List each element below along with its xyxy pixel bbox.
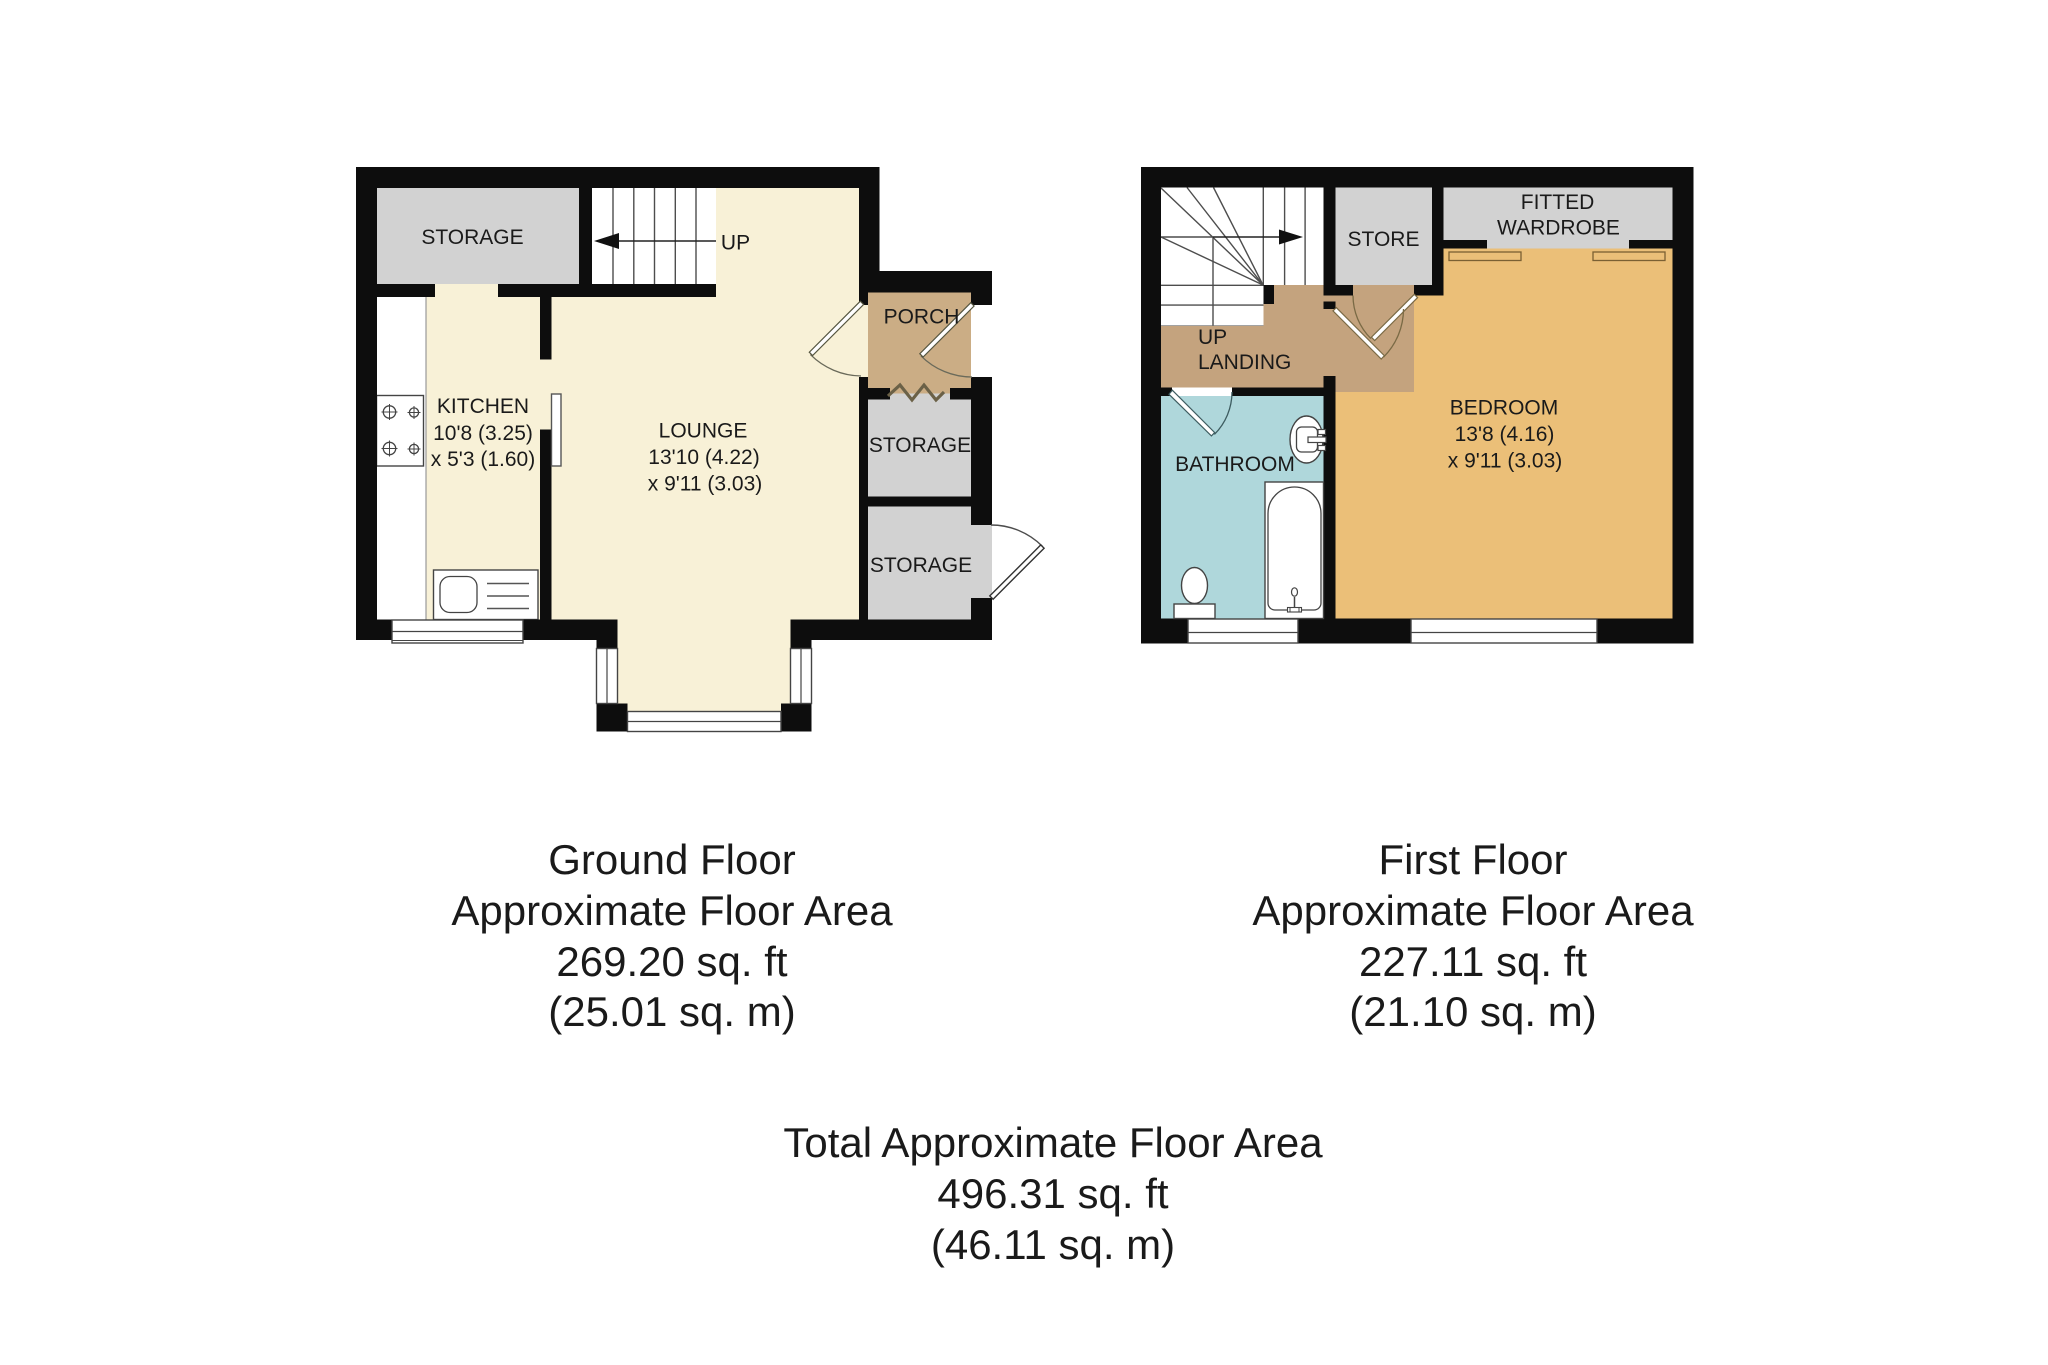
svg-text:BEDROOM: BEDROOM <box>1450 397 1559 420</box>
svg-text:13'8 (4.16): 13'8 (4.16) <box>1455 423 1555 446</box>
svg-text:227.11 sq. ft: 227.11 sq. ft <box>1359 938 1587 985</box>
svg-text:x 5'3 (1.60): x 5'3 (1.60) <box>431 448 535 471</box>
svg-text:KITCHEN: KITCHEN <box>437 395 529 418</box>
svg-text:LANDING: LANDING <box>1198 351 1291 374</box>
svg-text:269.20 sq. ft: 269.20 sq. ft <box>556 938 787 985</box>
svg-text:LOUNGE: LOUNGE <box>659 420 748 443</box>
svg-text:UP: UP <box>721 232 750 255</box>
svg-text:Ground Floor: Ground Floor <box>548 836 795 883</box>
svg-text:First Floor: First Floor <box>1379 836 1568 883</box>
svg-text:STORE: STORE <box>1348 228 1420 251</box>
svg-text:(46.11 sq. m): (46.11 sq. m) <box>931 1221 1175 1268</box>
svg-text:x 9'11 (3.03): x 9'11 (3.03) <box>648 473 763 496</box>
svg-text:10'8 (3.25): 10'8 (3.25) <box>433 422 533 445</box>
svg-text:UP: UP <box>1198 326 1227 349</box>
svg-text:BATHROOM: BATHROOM <box>1175 453 1295 476</box>
svg-text:PORCH: PORCH <box>884 306 960 329</box>
svg-text:STORAGE: STORAGE <box>869 434 971 457</box>
svg-text:STORAGE: STORAGE <box>870 554 972 577</box>
svg-text:WARDROBE: WARDROBE <box>1497 217 1620 240</box>
svg-text:13'10 (4.22): 13'10 (4.22) <box>648 446 759 469</box>
svg-text:(25.01 sq. m): (25.01 sq. m) <box>548 988 795 1035</box>
svg-text:Approximate Floor Area: Approximate Floor Area <box>1252 887 1694 934</box>
svg-text:496.31 sq. ft: 496.31 sq. ft <box>937 1170 1168 1217</box>
svg-text:Total Approximate Floor Area: Total Approximate Floor Area <box>783 1119 1323 1166</box>
svg-text:(21.10 sq. m): (21.10 sq. m) <box>1349 988 1596 1035</box>
svg-text:Approximate Floor Area: Approximate Floor Area <box>451 887 893 934</box>
svg-text:x 9'11 (3.03): x 9'11 (3.03) <box>1448 450 1563 473</box>
svg-text:FITTED: FITTED <box>1521 191 1595 214</box>
svg-text:STORAGE: STORAGE <box>421 226 523 249</box>
